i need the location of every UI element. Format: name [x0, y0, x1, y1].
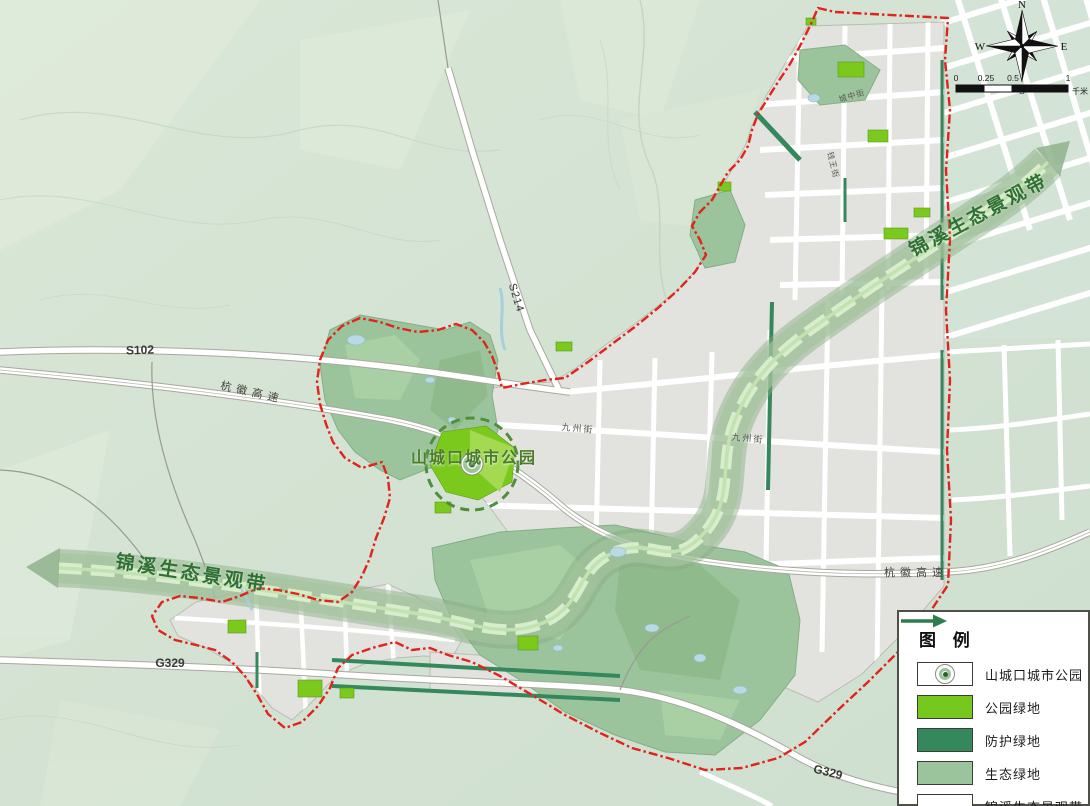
- ecological-green-swatch: [917, 761, 973, 785]
- legend-panel: 图 例 山城口城市公园 公园绿地 防护绿地 生态绿地 锦溪生态景观带: [897, 610, 1090, 806]
- scale-025: 0.25: [978, 73, 995, 83]
- compass-w: W: [975, 41, 986, 53]
- compass-e: E: [1061, 41, 1068, 53]
- scale-1: 1: [1066, 73, 1071, 83]
- legend-item-protective-green: 防护绿地: [917, 727, 1088, 753]
- scale-05: 0.5: [1007, 73, 1019, 83]
- legend-item-park-green: 公园绿地: [917, 694, 1088, 720]
- green-arrow-symbol: [917, 794, 973, 806]
- planning-map-page: N W E S 0 0.25 0.5 1 千米 山城口城市公园 锦溪生态景观带 …: [0, 0, 1090, 806]
- protective-green-swatch: [917, 728, 973, 752]
- legend-item-city-park: 山城口城市公园: [917, 661, 1088, 687]
- legend-label: 山城口城市公园: [985, 665, 1083, 684]
- scale-unit: 千米: [1072, 86, 1088, 96]
- legend-label: 生态绿地: [985, 764, 1041, 783]
- scale-0: 0: [954, 73, 959, 83]
- legend-label: 公园绿地: [985, 698, 1041, 717]
- legend-item-ecological-green: 生态绿地: [917, 760, 1088, 786]
- legend-label: 锦溪生态景观带: [985, 797, 1083, 806]
- compass-n: N: [1018, 0, 1026, 11]
- park-circle-symbol: [917, 662, 973, 686]
- legend-label: 防护绿地: [985, 731, 1041, 750]
- park-green-swatch: [917, 695, 973, 719]
- legend-item-landscape-band: 锦溪生态景观带: [917, 793, 1088, 806]
